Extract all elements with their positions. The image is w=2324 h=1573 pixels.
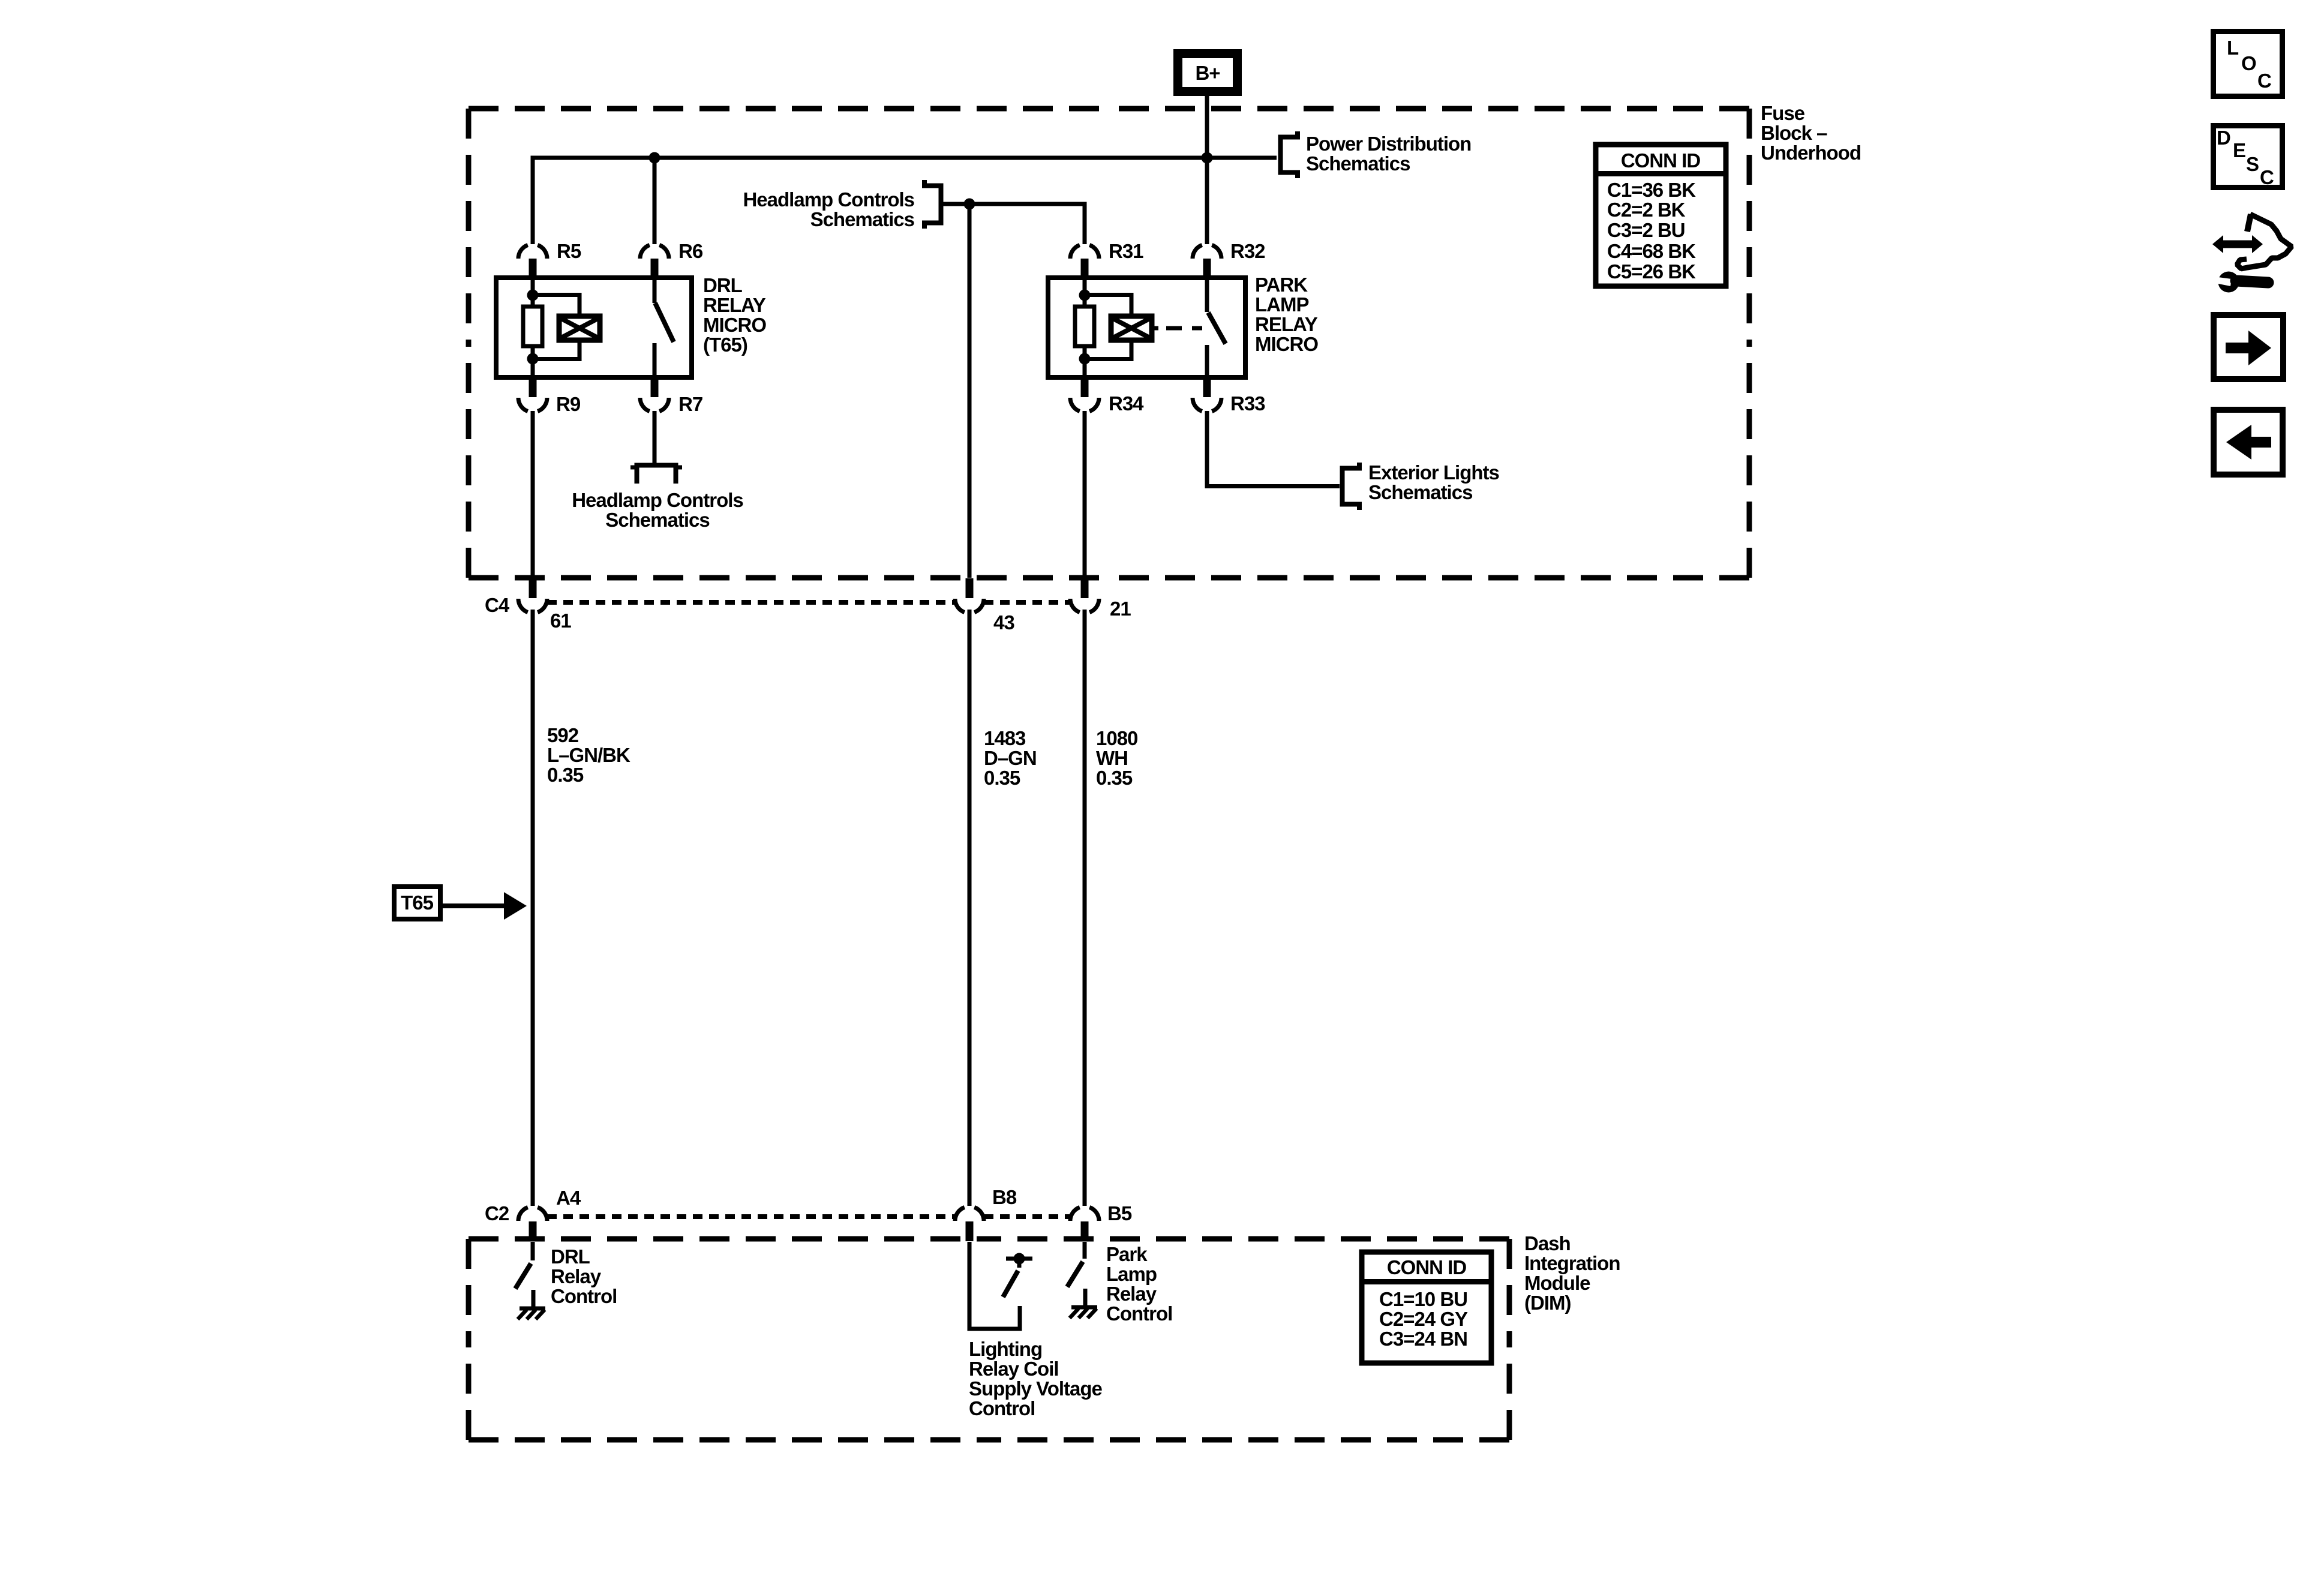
svg-text:E: E (2233, 139, 2245, 161)
svg-text:Integration: Integration (1524, 1252, 1620, 1274)
svg-text:C: C (2257, 70, 2271, 92)
svg-text:C2=2 BK: C2=2 BK (1607, 199, 1686, 221)
svg-text:B+: B+ (1195, 62, 1220, 84)
svg-text:L–GN/BK: L–GN/BK (547, 744, 630, 766)
svg-text:DRL: DRL (551, 1245, 590, 1268)
svg-text:C4: C4 (485, 594, 510, 616)
svg-text:Power Distribution: Power Distribution (1306, 133, 1471, 155)
svg-text:Relay: Relay (551, 1265, 602, 1287)
svg-text:R5: R5 (557, 240, 581, 262)
svg-text:Park: Park (1106, 1243, 1148, 1265)
svg-text:R33: R33 (1230, 392, 1265, 415)
svg-text:Schematics: Schematics (1306, 152, 1410, 175)
svg-text:Lighting: Lighting (969, 1338, 1042, 1360)
svg-text:D–GN: D–GN (984, 747, 1037, 769)
svg-text:L: L (2227, 37, 2239, 59)
svg-text:C2: C2 (485, 1202, 509, 1224)
svg-text:B8: B8 (992, 1186, 1017, 1208)
svg-text:C: C (2260, 166, 2274, 188)
svg-text:R31: R31 (1109, 240, 1143, 262)
svg-text:R7: R7 (678, 393, 702, 415)
svg-text:R34: R34 (1109, 392, 1144, 415)
svg-text:B5: B5 (1107, 1202, 1132, 1224)
svg-text:Block –: Block – (1761, 122, 1827, 144)
svg-text:PARK: PARK (1255, 274, 1308, 296)
svg-text:LAMP: LAMP (1255, 293, 1309, 316)
svg-text:Lamp: Lamp (1106, 1263, 1157, 1285)
svg-text:(T65): (T65) (703, 334, 747, 356)
svg-text:O: O (2241, 52, 2256, 74)
svg-text:0.35: 0.35 (984, 767, 1020, 789)
svg-text:61: 61 (550, 610, 571, 632)
svg-text:C2=24 GY: C2=24 GY (1379, 1308, 1468, 1330)
svg-text:Headlamp Controls: Headlamp Controls (572, 489, 743, 511)
svg-text:Schematics: Schematics (810, 208, 914, 230)
svg-text:Control: Control (969, 1397, 1035, 1419)
svg-text:0.35: 0.35 (547, 764, 584, 786)
svg-text:D: D (2217, 127, 2230, 149)
svg-text:C5=26 BK: C5=26 BK (1607, 260, 1696, 283)
svg-text:C1=10 BU: C1=10 BU (1379, 1288, 1467, 1310)
svg-text:43: 43 (993, 611, 1014, 634)
svg-text:T65: T65 (401, 891, 434, 914)
svg-text:0.35: 0.35 (1096, 767, 1133, 789)
svg-text:CONN ID: CONN ID (1387, 1256, 1467, 1278)
svg-text:C4=68 BK: C4=68 BK (1607, 240, 1696, 262)
svg-text:Headlamp Controls: Headlamp Controls (743, 188, 914, 211)
svg-text:Underhood: Underhood (1761, 142, 1861, 164)
svg-text:MICRO: MICRO (1255, 333, 1318, 355)
svg-text:R32: R32 (1230, 240, 1265, 262)
svg-text:C1=36 BK: C1=36 BK (1607, 179, 1696, 201)
svg-text:Schematics: Schematics (605, 509, 709, 531)
svg-text:Module: Module (1524, 1272, 1590, 1294)
svg-text:RELAY: RELAY (703, 294, 766, 316)
svg-text:Dash: Dash (1524, 1232, 1571, 1254)
svg-text:Exterior Lights: Exterior Lights (1368, 461, 1499, 484)
svg-text:592: 592 (547, 724, 579, 746)
svg-text:1483: 1483 (984, 727, 1026, 749)
svg-text:C3=2 BU: C3=2 BU (1607, 219, 1685, 241)
svg-text:Relay: Relay (1106, 1283, 1157, 1305)
svg-text:Supply Voltage: Supply Voltage (969, 1377, 1103, 1400)
svg-text:1080: 1080 (1096, 727, 1137, 749)
svg-text:Control: Control (1106, 1302, 1172, 1325)
svg-text:Schematics: Schematics (1368, 481, 1472, 503)
svg-text:MICRO: MICRO (703, 314, 766, 336)
svg-text:A4: A4 (556, 1187, 581, 1209)
svg-text:DRL: DRL (703, 274, 743, 296)
svg-text:Control: Control (551, 1285, 617, 1307)
svg-text:S: S (2246, 153, 2259, 175)
svg-text:Fuse: Fuse (1761, 102, 1805, 124)
svg-text:R6: R6 (678, 240, 703, 262)
svg-text:R9: R9 (556, 393, 581, 415)
svg-text:WH: WH (1096, 747, 1128, 769)
svg-text:C3=24 BN: C3=24 BN (1379, 1328, 1467, 1350)
svg-text:Relay Coil: Relay Coil (969, 1358, 1059, 1380)
svg-text:21: 21 (1110, 598, 1131, 620)
svg-text:(DIM): (DIM) (1524, 1292, 1571, 1314)
svg-text:CONN ID: CONN ID (1621, 149, 1701, 172)
svg-text:RELAY: RELAY (1255, 313, 1318, 335)
